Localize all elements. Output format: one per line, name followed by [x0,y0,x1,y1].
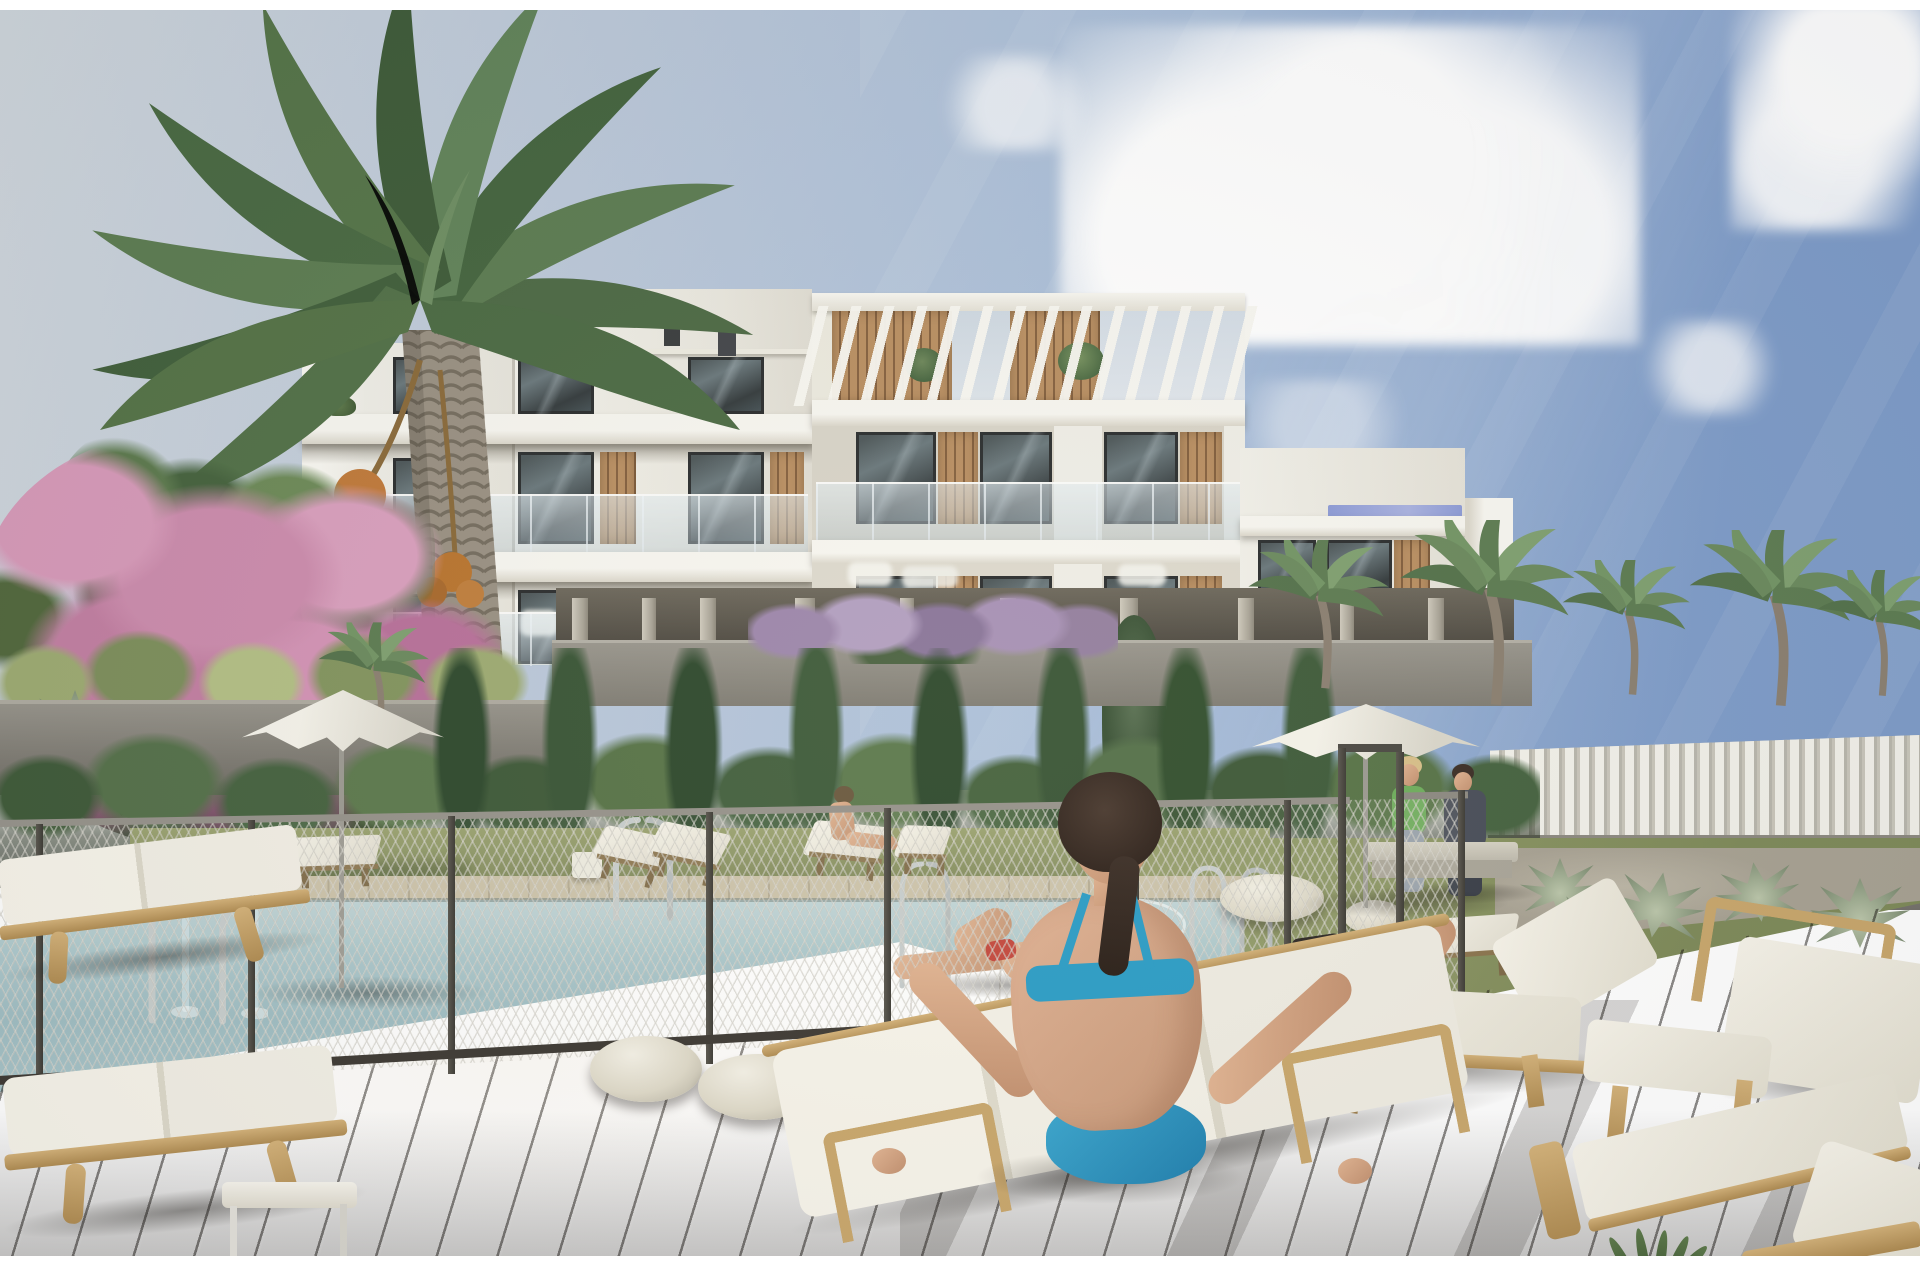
balcony-chair [902,566,958,588]
blue-bikini-woman-hair [1058,772,1162,872]
balcony-chair [848,562,892,586]
gate-crossbar [1338,744,1402,752]
blue-bikini-woman-hand [1338,1158,1372,1184]
pergola-rafters [794,306,1264,406]
pouf [590,1036,702,1102]
fence-post [448,816,455,1074]
blue-bikini-woman-hand [872,1148,906,1174]
balcony-slab [812,540,1245,564]
balcony-slab [812,400,1245,426]
pool-courtyard-render [0,0,1920,1280]
glass-balustrade [816,482,1241,540]
top-margin [0,0,1920,10]
bench-man-face [1454,772,1472,792]
balcony-chair [1118,564,1166,586]
bottom-margin [0,1256,1920,1280]
background-palms [1225,515,1920,825]
